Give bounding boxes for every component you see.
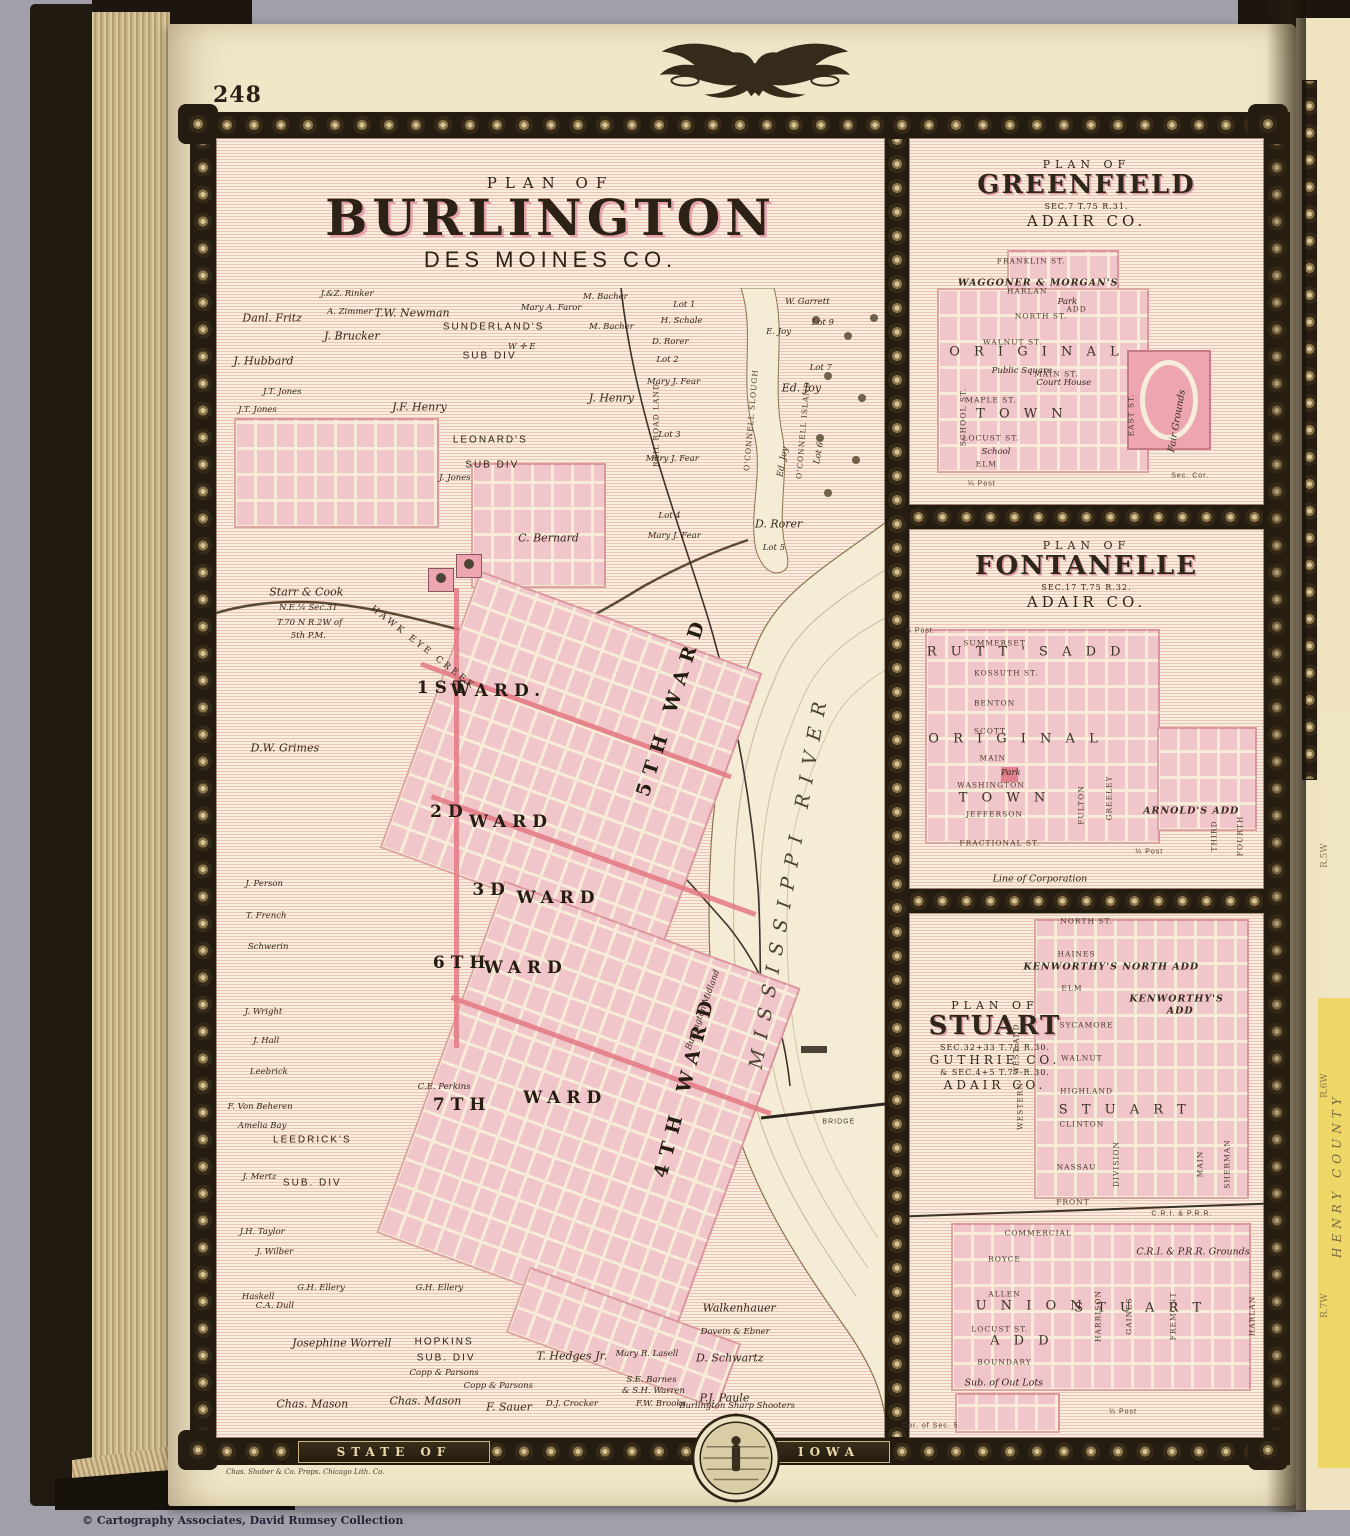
map-label: Leebrick — [250, 1067, 288, 1077]
map-label: LOCUST ST. — [962, 434, 1019, 443]
section-line: SEC.7 T.75 R.31. — [909, 202, 1264, 211]
map-label: SHERMAN — [1223, 1140, 1232, 1189]
burlington-panel: PLAN OF BURLINGTON DES MOINES CO. — [216, 138, 885, 1438]
map-label: C.E. Perkins — [418, 1082, 471, 1092]
map-label: ¼ Post — [968, 481, 996, 488]
map-label: EAST ST. — [1127, 393, 1136, 436]
map-label: ADD — [1066, 305, 1086, 314]
map-label: SUB. DIV — [417, 1352, 476, 1363]
map-label: SUB DIV — [465, 459, 519, 470]
map-label: J. Wilber — [257, 1247, 294, 1257]
range-label: R.7W — [1320, 1293, 1330, 1318]
map-label: Park — [1001, 768, 1021, 778]
map-label: ELM — [1061, 983, 1082, 992]
map-label: J. Person — [245, 879, 283, 889]
map-label: C.R.I. & P.R.R. Grounds — [1136, 1246, 1249, 1257]
map-label: J. Henry — [589, 392, 634, 405]
map-label: Mary J. Fear — [648, 531, 701, 541]
map-label: A D D — [990, 1333, 1054, 1348]
map-label: J. Mertz — [243, 1172, 277, 1182]
burlington-map: Danl. FritzJ.&Z. RinkerA. ZimmerJ. Bruck… — [216, 288, 885, 1415]
map-label: HARRISON — [1093, 1290, 1102, 1342]
map-label: T. French — [246, 911, 287, 921]
stuart-panel: PLAN OF STUART SEC.32+33 T.78 R.30. GUTH… — [909, 913, 1264, 1438]
map-label: Starr & Cook — [269, 586, 343, 599]
map-label: ALLEN — [988, 1289, 1020, 1298]
map-label: MAIN — [979, 754, 1006, 763]
map-label: Schwerin — [248, 942, 289, 952]
map-label: Lot 3 — [658, 430, 680, 440]
map-label: D. Rorer — [755, 517, 802, 530]
map-label: Lot 7 — [810, 363, 832, 373]
map-label: WEST ADD — [1011, 1023, 1020, 1074]
map-label: Line of Corporation — [993, 874, 1088, 885]
map-label: Lot 2 — [656, 355, 678, 365]
book-gutter-shadow — [1266, 0, 1306, 1512]
atlas-page: 248 PLAN OF BURLINGTON DES MOINES CO. — [168, 24, 1296, 1506]
map-label: T. Hedges Jr. — [537, 1350, 608, 1363]
county-line: GUTHRIE CO. — [915, 1053, 1075, 1067]
map-label: A. Zimmer — [327, 307, 372, 317]
copyright-line: © Cartography Associates, David Rumsey C… — [82, 1514, 403, 1527]
map-label: ADD — [1167, 1006, 1194, 1017]
map-label: Lot 9 — [812, 318, 834, 328]
map-label: T.W. Newman — [374, 306, 449, 319]
map-label: T O W N — [959, 790, 1050, 805]
stuart-name: STUART — [915, 1012, 1075, 1042]
map-label: Lot 5 — [763, 543, 785, 553]
map-content: PLAN OF BURLINGTON DES MOINES CO. — [216, 138, 1264, 1438]
map-label: D. Schwartz — [696, 1351, 764, 1364]
street-grid — [471, 463, 606, 588]
border-frame-top — [190, 112, 1290, 138]
greenfield-title: PLAN OF GREENFIELD SEC.7 T.75 R.31. ADAI… — [909, 158, 1264, 230]
map-label: HAINES — [1057, 950, 1095, 959]
map-label: HARLAN — [1247, 1295, 1256, 1336]
map-label: O R I G I N A L — [949, 345, 1123, 360]
map-label: R U T T ' S A D D — [927, 645, 1126, 660]
page-stack-edge — [92, 12, 170, 1504]
section-line: SEC.17 T.75 R.32. — [909, 583, 1264, 592]
map-label: SCHOOL ST. — [958, 388, 967, 447]
map-label: Mary A. Faror — [521, 303, 582, 313]
map-label: BRIDGE — [822, 1118, 855, 1125]
map-label: Chas. Mason — [389, 1395, 461, 1408]
map-label: Court House — [1036, 378, 1091, 388]
county-line: ADAIR CO. — [909, 593, 1264, 611]
map-label: JEFFERSON — [966, 810, 1023, 819]
map-label: GREELEY — [1104, 775, 1113, 820]
map-label: SUB. DIV — [283, 1177, 342, 1188]
map-label: Chas. Mason — [276, 1397, 348, 1410]
map-label: ¼ Post — [1135, 848, 1163, 855]
map-label: RAIL ROAD LAND — [651, 383, 660, 467]
island-trees — [812, 314, 878, 497]
map-label: DIVISION — [1111, 1141, 1120, 1187]
map-label: Lot 1 — [673, 300, 695, 310]
burlington-title: PLAN OF BURLINGTON DES MOINES CO. — [216, 174, 885, 273]
map-label: M. Bacher — [589, 322, 634, 332]
map-label: M. Bacher — [583, 292, 628, 302]
atlas-photo: 248 PLAN OF BURLINGTON DES MOINES CO. — [0, 0, 1350, 1536]
cemetery-block — [428, 568, 454, 592]
steamboat — [801, 1046, 827, 1053]
map-label: FULTON — [1077, 786, 1086, 826]
corner-medallion — [178, 1430, 218, 1470]
stuart-title: PLAN OF STUART SEC.32+33 T.78 R.30. GUTH… — [915, 999, 1075, 1092]
map-label: J.T. Jones — [263, 387, 302, 397]
burlington-county: DES MOINES CO. — [216, 247, 885, 273]
map-label: FRONT — [1056, 1198, 1090, 1207]
map-label: FRANKLIN ST. — [997, 256, 1066, 265]
map-label: F. Von Beheren — [228, 1102, 293, 1112]
map-label: J. Brucker — [324, 330, 380, 343]
map-label: ARNOLD'S ADD — [1143, 806, 1239, 817]
map-label: Lot 4 — [658, 511, 680, 521]
map-label: School — [981, 447, 1010, 457]
greenfield-panel: PLAN OF GREENFIELD SEC.7 T.75 R.31. ADAI… — [909, 138, 1264, 505]
map-label: & S.H. Warren — [622, 1386, 685, 1396]
next-page-county-label: HENRY COUNTY — [1330, 1092, 1344, 1258]
map-label: O R I G I N A L — [928, 732, 1102, 747]
map-label: Dovein & Ebner — [701, 1327, 770, 1337]
map-label: Copp & Parsons — [409, 1368, 478, 1378]
map-label: NORTH ST. — [1060, 917, 1113, 926]
greenfield-name: GREENFIELD — [909, 171, 1264, 201]
map-label: Amelia Bay — [238, 1121, 287, 1131]
map-label: BENTON — [974, 698, 1015, 707]
map-label: WARD — [469, 812, 553, 832]
map-label: J. Wright — [245, 1007, 283, 1017]
map-label: WARD — [516, 888, 600, 908]
map-label: Josephine Worrell — [292, 1336, 391, 1349]
banner-state-of: STATE OF — [298, 1441, 490, 1463]
map-label: LOCUST ST. — [971, 1324, 1028, 1333]
map-label: Sub. of Out Lots — [965, 1378, 1043, 1389]
map-label: KENWORTHY'S NORTH ADD — [1024, 961, 1200, 972]
map-label: C. Bernard — [518, 532, 579, 545]
map-label: BOUNDARY — [977, 1358, 1031, 1367]
map-label: S T U A R T — [1059, 1102, 1191, 1117]
map-label: SYCAMORE — [1059, 1021, 1113, 1030]
map-label: J. Hubbard — [233, 355, 293, 368]
eagle-vignette-icon — [655, 38, 855, 106]
map-label: GAINES — [1125, 1297, 1134, 1335]
map-label: ¼ Post — [1109, 1408, 1137, 1415]
fontanelle-name: FONTANELLE — [909, 552, 1264, 582]
map-label: Sec. Cor. — [1171, 473, 1209, 480]
range-label: R.6W — [1320, 1073, 1330, 1098]
map-label: H. Schale — [661, 316, 703, 326]
burlington-name: BURLINGTON — [216, 192, 885, 245]
book-cover-edge — [30, 4, 92, 1506]
map-label: Cor. of Sec. 5 — [902, 1422, 958, 1429]
map-label: D.W. Grimes — [251, 741, 319, 754]
map-label: D. Rorer — [652, 337, 689, 347]
map-label: Danl. Fritz — [242, 312, 302, 325]
map-label: J.H. Taylor — [240, 1227, 285, 1237]
map-label: ELM — [976, 459, 997, 468]
map-label: E. Joy — [766, 327, 791, 337]
panel-divider-horizontal — [909, 889, 1264, 913]
map-label: P.J. Paule — [700, 1392, 750, 1405]
cemetery-block — [456, 554, 482, 578]
map-label: 3D — [472, 880, 511, 900]
map-label: J.&Z. Rinker — [321, 289, 374, 299]
map-label: HIGHLAND — [1060, 1086, 1113, 1095]
state-seal-icon — [690, 1412, 782, 1504]
fontanelle-panel: PLAN OF FONTANELLE SEC.17 T.75 R.32. ADA… — [909, 529, 1264, 889]
printer-credit: Chas. Shober & Co. Props. Chicago Lith. … — [226, 1468, 384, 1476]
county-line: ADAIR CO. — [915, 1078, 1075, 1092]
map-label: THIRD — [1209, 820, 1218, 851]
map-label: Walkenhauer — [703, 1301, 776, 1314]
map-label: J. Hall — [253, 1036, 279, 1046]
map-label: N.E.¼ Sec.31 — [279, 603, 338, 613]
map-label: NASSAU — [1057, 1162, 1097, 1171]
map-label: 5th P.M. — [291, 631, 326, 641]
map-label: COMMERCIAL — [1004, 1229, 1071, 1238]
map-label: W. Garrett — [785, 297, 830, 307]
map-label: KENWORTHY'S — [1129, 993, 1223, 1004]
map-label: FRACTIONAL ST. — [959, 838, 1040, 847]
panel-divider-horizontal — [909, 505, 1264, 529]
map-label: WARD — [484, 958, 568, 978]
corner-medallion — [178, 104, 218, 144]
street-grid — [234, 418, 439, 528]
street-grid — [955, 1393, 1060, 1433]
county-line: ADAIR CO. — [909, 212, 1264, 230]
map-label: C.A. Dull — [256, 1301, 294, 1311]
map-label: J.T. Jones — [238, 405, 277, 415]
map-label: MAIN ST. — [1034, 369, 1078, 378]
map-label: WALNUT — [1061, 1053, 1103, 1062]
race-track-oval — [1140, 360, 1198, 440]
map-label: C.R.I. & P.R.R. — [1151, 1210, 1212, 1217]
banner-iowa: IOWA — [768, 1441, 890, 1463]
map-label: FOURTH — [1236, 816, 1245, 857]
map-label: LEEDRICK'S — [273, 1135, 352, 1146]
map-label: HARLAN — [1007, 286, 1048, 295]
map-label: SUNDERLAND'S — [443, 322, 544, 333]
map-label: D.J. Crocker — [546, 1399, 598, 1409]
map-label: WESTERN — [1016, 1082, 1025, 1130]
map-label: U N I O N — [976, 1299, 1087, 1314]
map-label: W ✛ E — [508, 342, 535, 352]
map-label: J. Jones — [439, 473, 471, 483]
map-label: HOPKINS — [415, 1336, 474, 1347]
map-label: G.H. Ellery — [416, 1283, 464, 1293]
map-label: S.E. Barnes — [626, 1375, 676, 1385]
map-label: J.F. Henry — [392, 401, 447, 414]
map-label: T O W N — [976, 406, 1067, 421]
map-label: ROYCE — [988, 1254, 1021, 1263]
map-label: WARD — [523, 1088, 607, 1108]
map-label: 6TH — [433, 953, 492, 973]
map-label: MAPLE ST. — [965, 396, 1016, 405]
map-label: CLINTON — [1059, 1120, 1104, 1129]
map-label: Copp & Parsons — [464, 1381, 533, 1391]
border-frame-left — [190, 112, 216, 1465]
map-label: 7TH — [433, 1095, 492, 1115]
map-label: NORTH ST. — [1015, 312, 1068, 321]
map-label: Mary R. Lasell — [615, 1349, 678, 1359]
map-label: T.70 N R.2W of — [277, 618, 342, 628]
map-label: FREMONT — [1169, 1291, 1178, 1340]
page-number: 248 — [213, 82, 262, 108]
map-label: F. Sauer — [486, 1401, 532, 1414]
map-label: G.H. Ellery — [297, 1283, 345, 1293]
section-line: SEC.32+33 T.78 R.30. — [915, 1043, 1075, 1052]
map-label: 2D — [430, 802, 469, 822]
map-label: WASHINGTON — [957, 781, 1025, 790]
map-label: MAIN — [1196, 1151, 1205, 1178]
map-label: WARD. — [451, 681, 546, 701]
range-label: R.5W — [1320, 843, 1330, 868]
section-line: & SEC.4+5 T.77-R.30. — [915, 1068, 1075, 1077]
map-label: LEONARD'S — [453, 435, 528, 446]
fontanelle-title: PLAN OF FONTANELLE SEC.17 T.75 R.32. ADA… — [909, 539, 1264, 611]
map-label: ¼ Post — [905, 627, 933, 634]
map-label: SUB DIV — [463, 350, 517, 361]
map-label: KOSSUTH ST. — [974, 669, 1038, 678]
panel-divider-vertical — [885, 138, 909, 1438]
